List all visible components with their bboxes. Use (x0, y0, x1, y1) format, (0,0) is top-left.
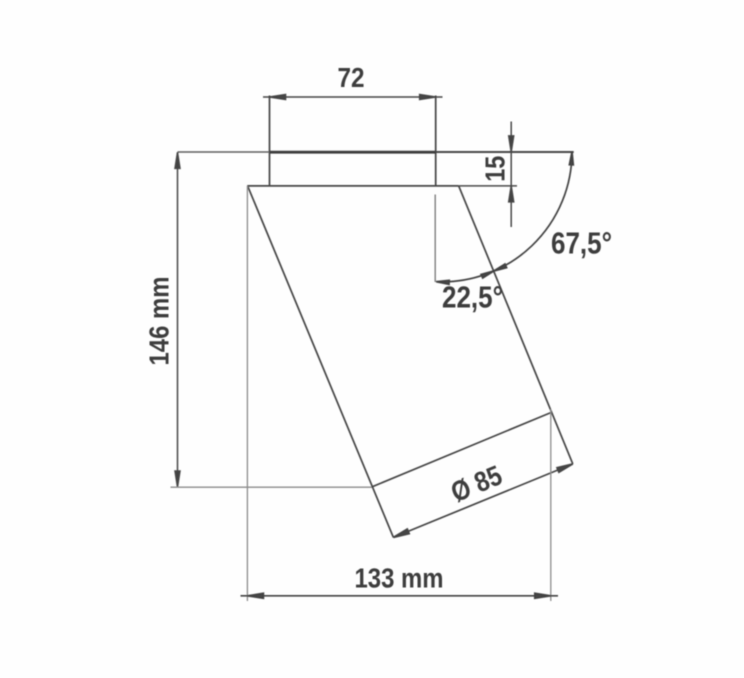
svg-text:Ø 85: Ø 85 (446, 459, 506, 508)
svg-text:22,5°: 22,5° (442, 280, 503, 315)
svg-text:72: 72 (338, 62, 365, 93)
svg-text:15: 15 (480, 156, 511, 182)
svg-text:133 mm: 133 mm (355, 563, 444, 594)
svg-text:67,5°: 67,5° (551, 226, 612, 261)
svg-text:146 mm: 146 mm (144, 277, 175, 366)
